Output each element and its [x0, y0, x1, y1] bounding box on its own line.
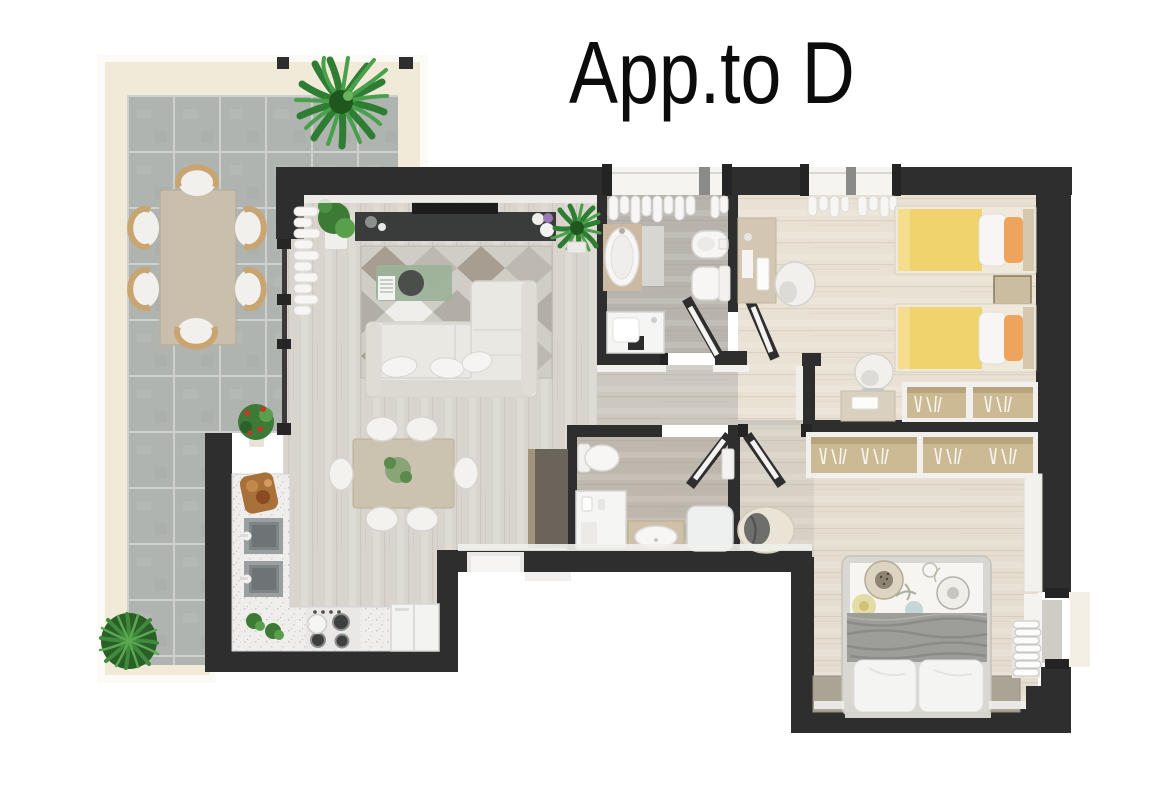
svg-text:App.to D: App.to D — [569, 25, 855, 123]
